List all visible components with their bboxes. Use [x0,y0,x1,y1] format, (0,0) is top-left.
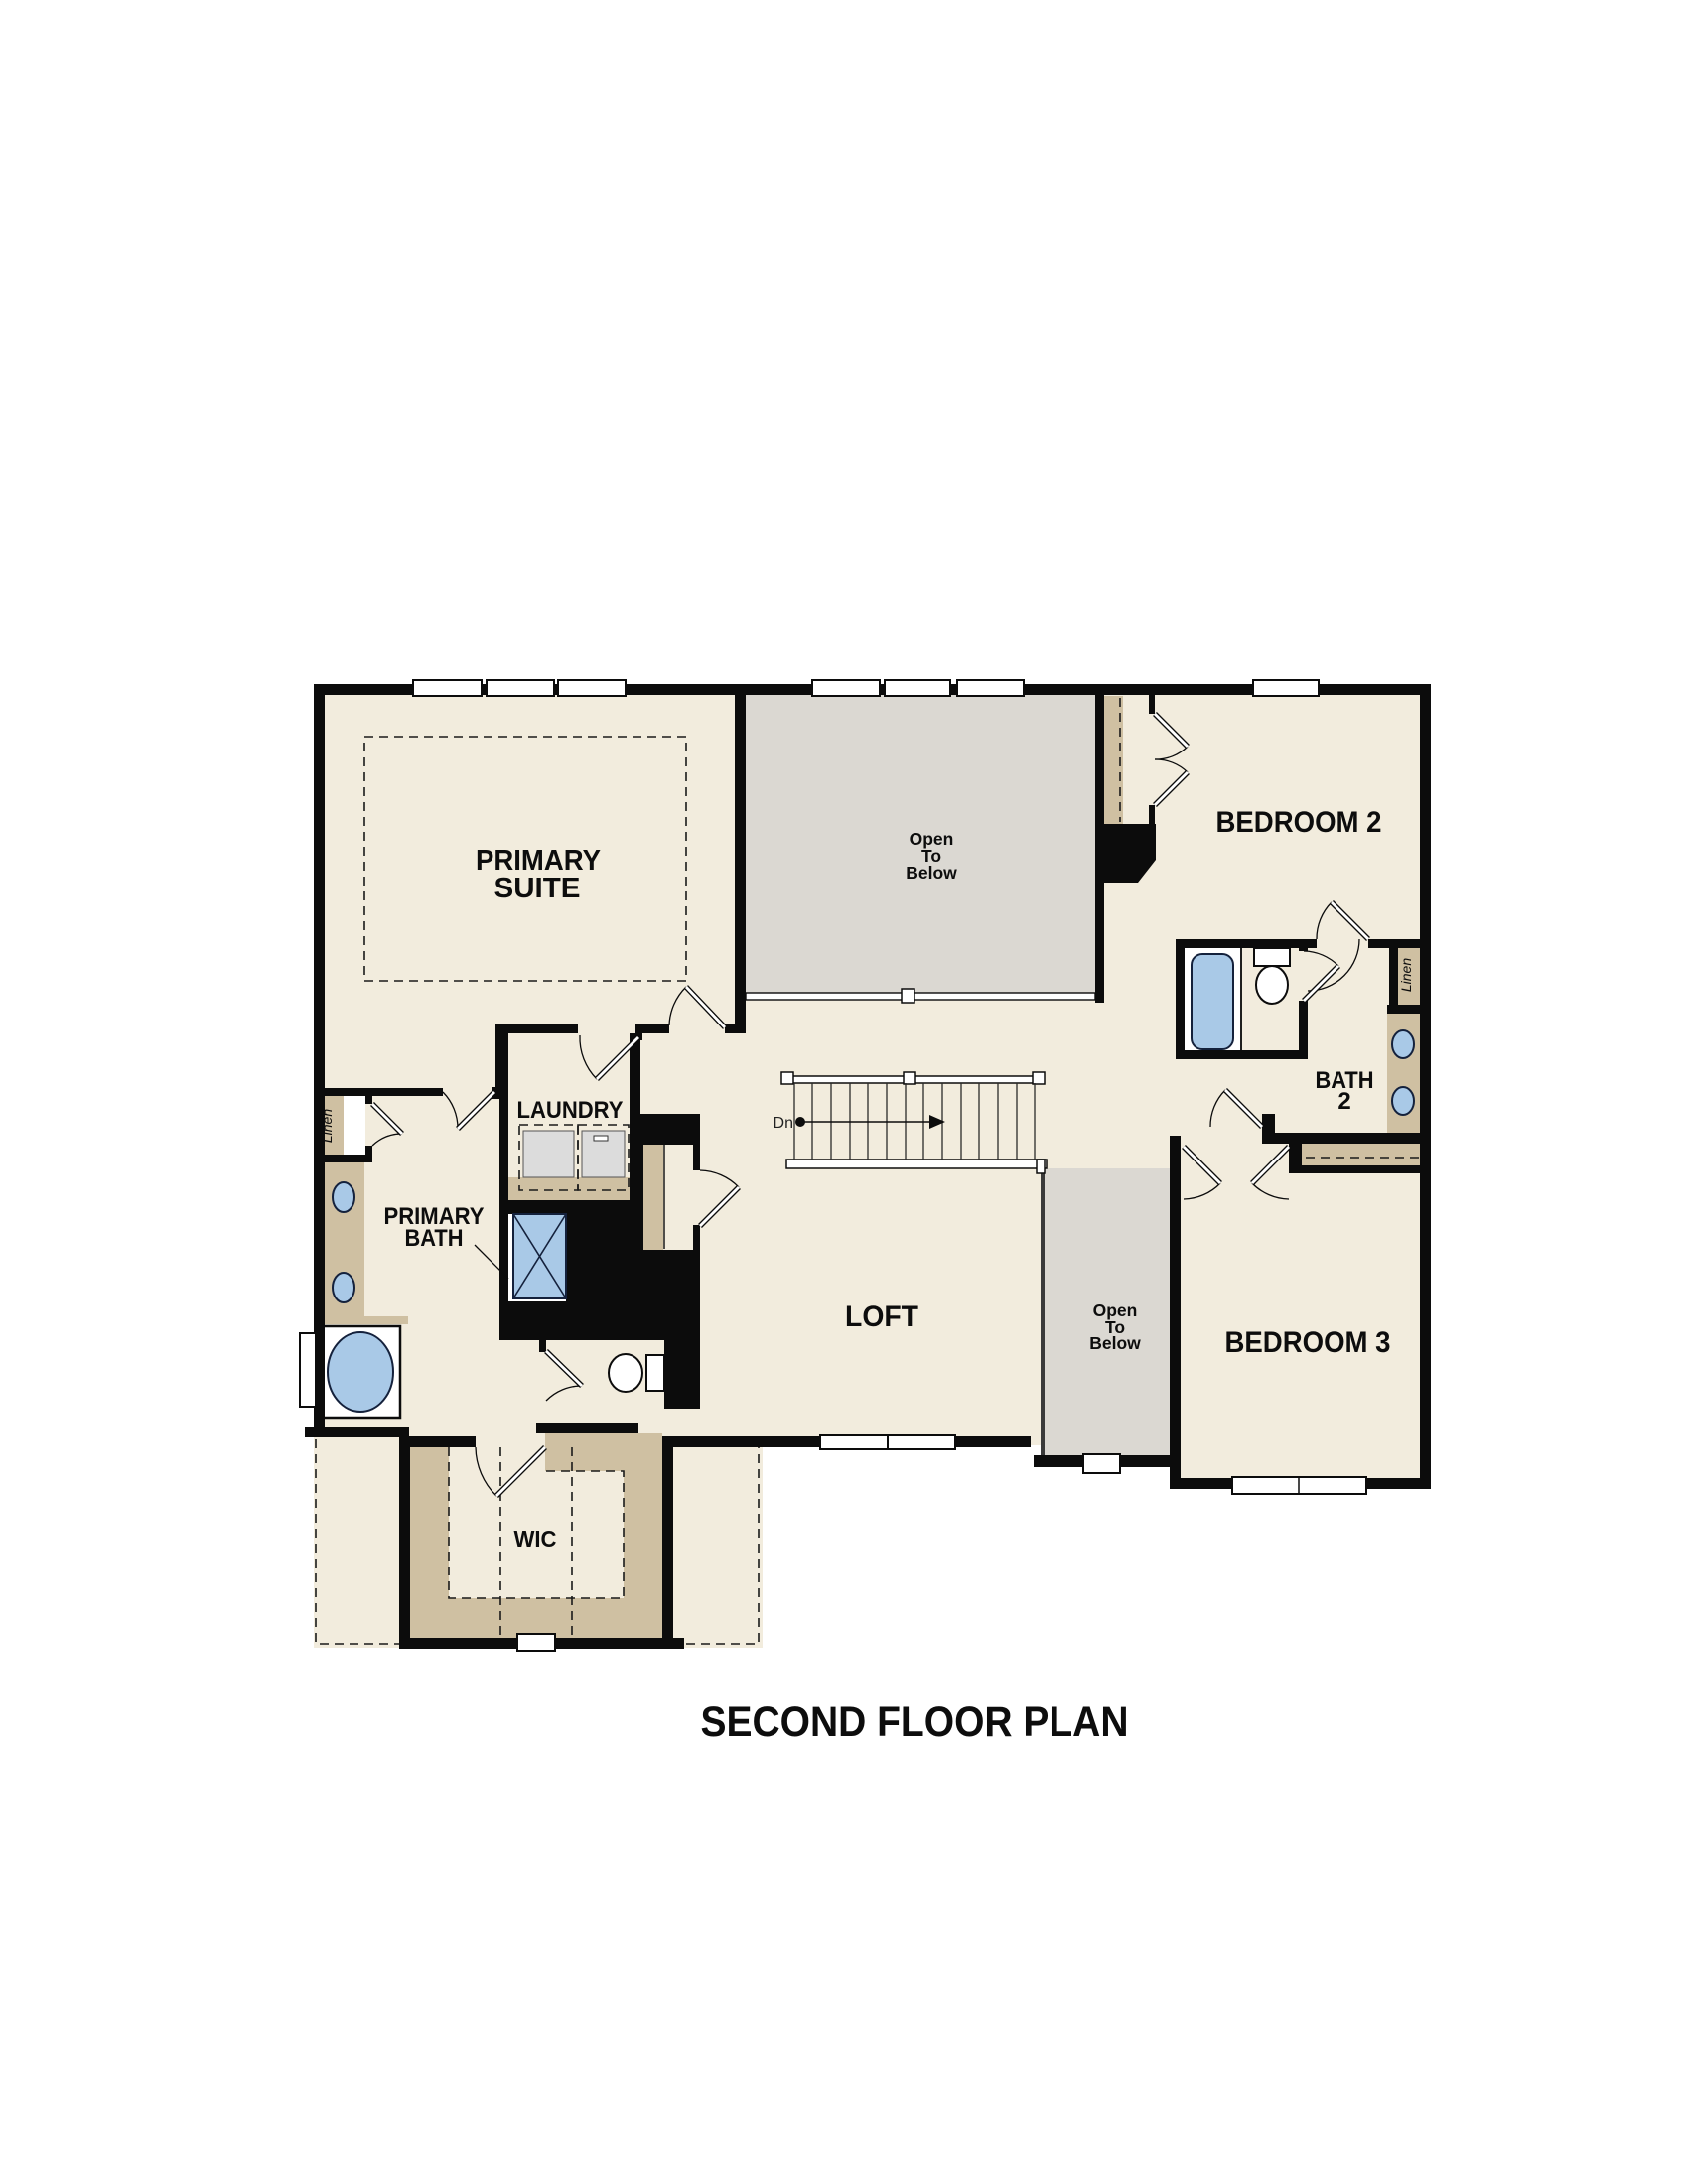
svg-text:LAUNDRY: LAUNDRY [517,1097,624,1124]
svg-text:Below: Below [906,863,957,883]
svg-text:2: 2 [1337,1088,1350,1115]
svg-text:SUITE: SUITE [494,873,581,904]
svg-text:Linen: Linen [319,1109,335,1143]
svg-text:BATH: BATH [405,1225,464,1252]
svg-text:BEDROOM 3: BEDROOM 3 [1225,1326,1391,1359]
svg-text:Below: Below [1089,1333,1141,1353]
svg-text:SECOND FLOOR PLAN: SECOND FLOOR PLAN [701,1699,1129,1746]
svg-text:BEDROOM 2: BEDROOM 2 [1216,806,1382,839]
svg-text:Linen: Linen [1398,958,1414,992]
svg-text:WIC: WIC [514,1526,557,1552]
svg-text:LOFT: LOFT [845,1300,918,1333]
svg-text:Dn: Dn [774,1115,793,1132]
